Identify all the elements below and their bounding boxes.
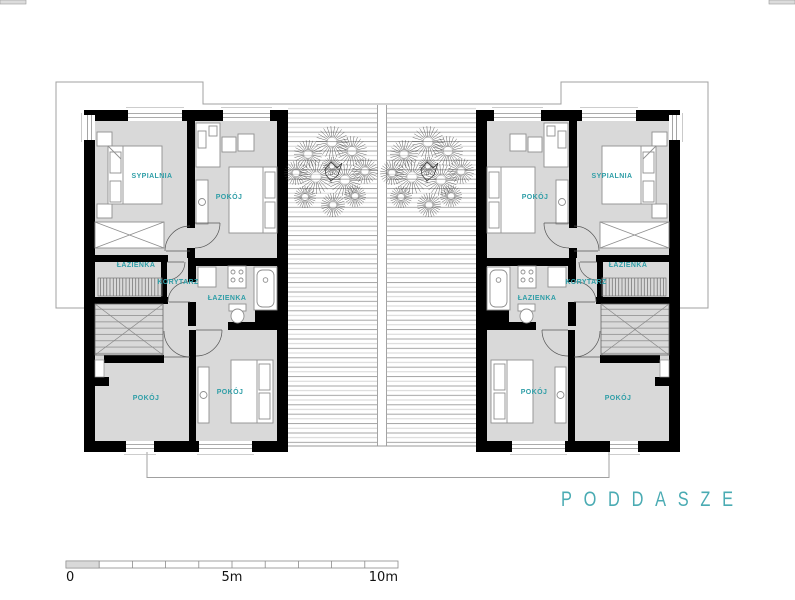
scale-five-label: 5m [222, 570, 243, 585]
room-label-room: POKÓJ [605, 393, 632, 402]
room-label-room: POKÓJ [521, 387, 548, 396]
room-label-corridor: KORYTARZ [565, 279, 607, 286]
scale-bar: 0 5m 10m [66, 561, 398, 585]
scale-zero-label: 0 [66, 570, 74, 585]
floor-title: PODDASZE [561, 487, 745, 510]
attic-floor-plan-page: SYPIALNIA POKÓJ ŁAZIENKA KORYTARZ ŁAZIEN… [0, 0, 795, 600]
room-label-bathroom: ŁAZIENKA [117, 262, 156, 269]
corner-fragment-right [769, 0, 795, 4]
room-label-room: POKÓJ [217, 387, 244, 396]
room-label-bathroom: ŁAZIENKA [518, 295, 557, 302]
scale-ten-label: 10m [369, 570, 398, 585]
room-label-bedroom: SYPIALNIA [592, 173, 633, 180]
terrace-deck [288, 105, 476, 446]
room-label-bathroom: ŁAZIENKA [609, 262, 648, 269]
ground-floor-outline [147, 452, 609, 478]
room-label-room: POKÓJ [216, 192, 243, 201]
room-label-room: POKÓJ [522, 192, 549, 201]
attic-floor-plan-svg: SYPIALNIA POKÓJ ŁAZIENKA KORYTARZ ŁAZIEN… [0, 0, 795, 600]
room-label-bathroom: ŁAZIENKA [208, 295, 247, 302]
room-label-room: POKÓJ [133, 393, 160, 402]
corner-fragment-left [0, 0, 26, 4]
room-label-bedroom: SYPIALNIA [132, 173, 173, 180]
room-label-corridor: KORYTARZ [157, 279, 199, 286]
